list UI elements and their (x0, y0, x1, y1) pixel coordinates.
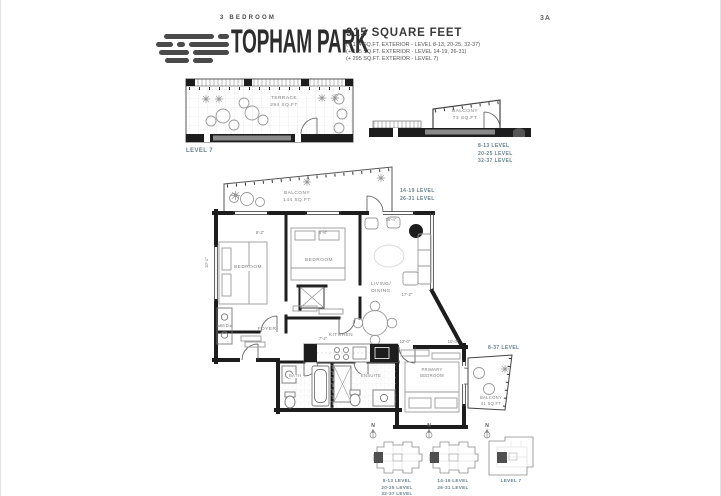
bedroom1-label: BEDROOM (233, 266, 263, 271)
balcony-level-caption-2: 20-25 LEVEL (478, 152, 513, 157)
kitchen-label: KITCHEN (329, 334, 353, 339)
primary-bedroom-label-line2: BEDROOM (419, 374, 445, 378)
primary-bedroom-label-line1: PRIMARY (420, 368, 443, 372)
balcony-diagram-linework (369, 100, 531, 137)
brand-logo-icon (156, 34, 229, 63)
terrace-room-label: TERRACE (271, 97, 297, 102)
small-balcony-room-label: BALCONY (480, 396, 502, 400)
area-note-3: (+ 295 SQ.FT. EXTERIOR - LEVEL 7) (346, 57, 438, 63)
balcony-level-caption-1: 8-13 LEVEL (478, 144, 510, 149)
dim-primary-closet: 10'-0" (448, 340, 459, 344)
keyplan3-north-label: N (485, 424, 489, 429)
main-balcony-room-label: BALCONY (284, 192, 310, 197)
area-title: 915 SQUARE FEET (346, 28, 462, 40)
dim-living-width: 18'-4" (386, 218, 397, 222)
keyplan1-caption-3: 32-37 LEVEL (381, 491, 412, 496)
bedroom-type-label: 3 BEDROOM (220, 15, 276, 21)
dim-bedroom1-width: 8'-2" (256, 231, 264, 235)
floorplan-sheet: 3 BEDROOM TOPHAM PARK 915 SQUARE FEET (+… (0, 0, 721, 496)
foyer-label: FOYER (258, 328, 277, 333)
keyplan2-caption-2: 26-31 LEVEL (437, 485, 468, 491)
plan-linework (1, 0, 721, 496)
keyplan1-north-label: N (371, 424, 375, 429)
balcony-diagram-room-label: BALCONY (452, 110, 478, 115)
small-balcony-level-caption: 8-37 LEVEL (488, 346, 520, 351)
bath-label: BATH (288, 374, 302, 378)
terrace-level-caption: LEVEL 7 (186, 148, 213, 154)
area-note-1: (+ 114 SQ.FT. EXTERIOR - LEVEL 8-13, 20-… (346, 43, 480, 49)
dim-living-height: 17'-2" (402, 293, 413, 297)
terrace-diagram-linework (186, 79, 353, 142)
plan-code: 3A (540, 15, 551, 22)
dim-kitchen-width: 7'-2" (319, 337, 327, 341)
balcony-diagram-area-label: 73 SQ.FT (453, 117, 477, 122)
living-dining-label-line2: DINING (371, 290, 391, 295)
living-dining-label-line1: LIVING/ (371, 283, 391, 288)
main-balcony-caption-1: 14-19 LEVEL (400, 189, 435, 194)
keyplan1-caption-1: 8-13 LEVEL (383, 478, 411, 484)
laundry-label: W/D (220, 324, 229, 328)
keyplan2-caption-1: 14-19 LEVEL (437, 478, 468, 484)
bedroom2-label: BEDROOM (304, 259, 334, 264)
dim-bedroom2-width: 8'-8" (319, 231, 327, 235)
keyplan1-caption-2: 20-25 LEVEL (381, 485, 412, 491)
small-balcony-area-label: 41 SQ.FT (481, 402, 502, 406)
ensuite-label: ENSUITE (360, 374, 382, 378)
dim-primary-width: 12'-0" (400, 340, 411, 344)
main-plan-linework (214, 167, 512, 427)
terrace-area-label: 294 SQ.FT (270, 104, 298, 109)
main-balcony-area-label: 144 SQ.FT (283, 199, 311, 204)
area-note-2: (+ 185 SQ.FT. EXTERIOR - LEVEL 14-19, 26… (346, 50, 466, 56)
balcony-level-caption-3: 32-37 LEVEL (478, 159, 513, 164)
keyplan2-north-label: N (427, 424, 431, 429)
main-balcony-caption-2: 26-31 LEVEL (400, 197, 435, 202)
dim-bedroom1-height: 10'-1" (205, 257, 209, 268)
keyplan3-caption-1: LEVEL 7 (501, 478, 522, 484)
keyplan-linework (370, 430, 533, 476)
